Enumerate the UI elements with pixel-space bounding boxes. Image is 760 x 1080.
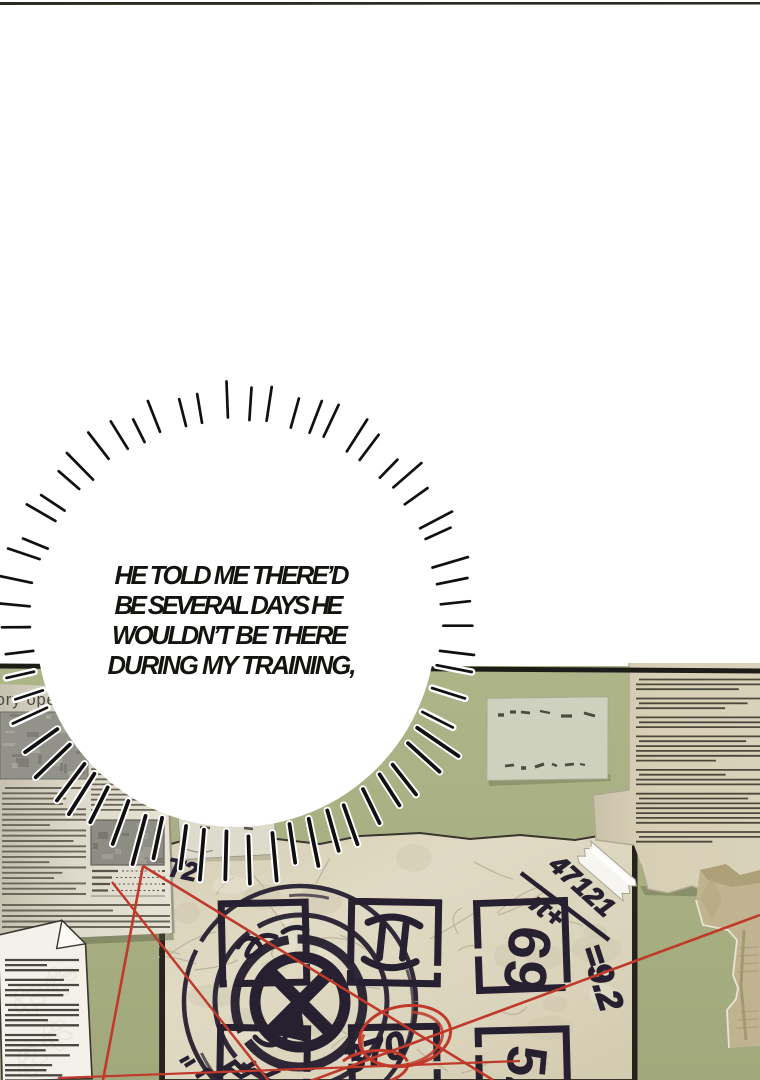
svg-text:BE SEVERAL DAYS HE: BE SEVERAL DAYS HE: [115, 592, 345, 620]
svg-text:WOULDN’T BE THERE: WOULDN’T BE THERE: [112, 622, 349, 650]
svg-text:69: 69: [490, 922, 565, 996]
svg-text:DURING MY TRAINING,: DURING MY TRAINING,: [108, 652, 357, 680]
svg-text:HE TOLD ME THERE’D: HE TOLD ME THERE’D: [115, 562, 350, 590]
